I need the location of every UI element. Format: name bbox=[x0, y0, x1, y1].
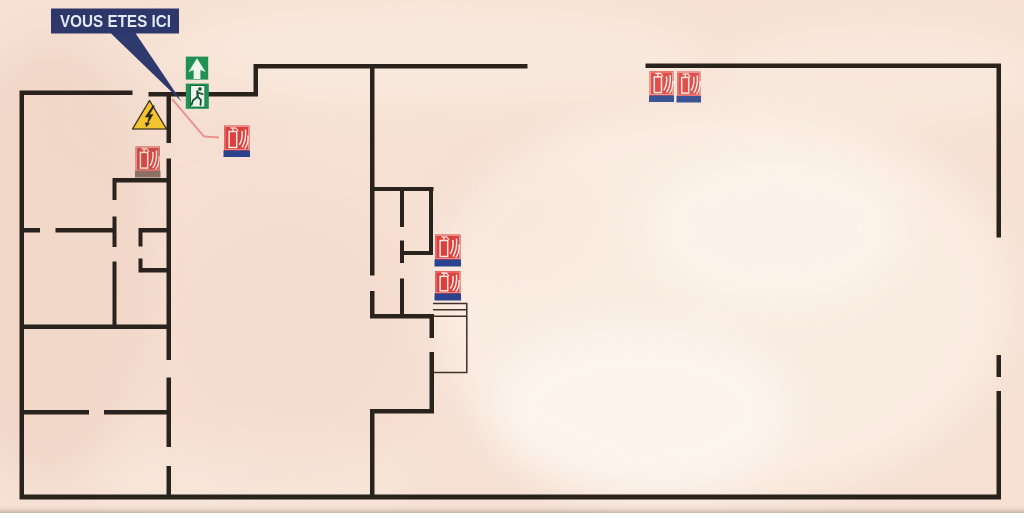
svg-text:VOUS ETES ICI: VOUS ETES ICI bbox=[60, 11, 171, 31]
